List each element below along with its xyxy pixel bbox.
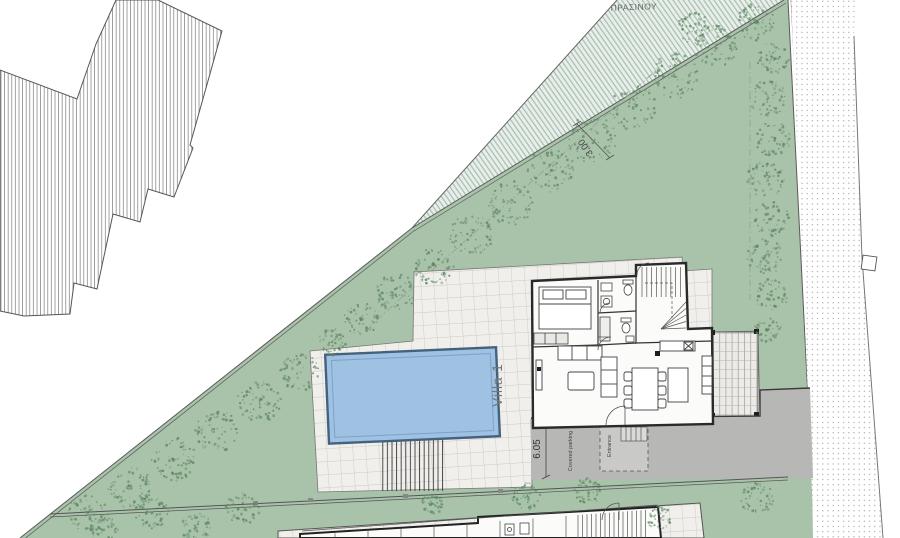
bed (539, 287, 591, 329)
pool-side-grate (379, 434, 446, 491)
dim-6-05: 6.05 (532, 439, 543, 459)
label-entrance: Entrance (607, 435, 613, 457)
site-plan-svg: 6.05 Covered parking Entrance (0, 0, 900, 538)
label-covered-parking: Covered parking (568, 431, 574, 471)
dining-table (624, 368, 666, 410)
wardrobe (534, 333, 568, 344)
pool (325, 347, 500, 443)
utility-box (861, 255, 877, 271)
pergola (710, 329, 759, 418)
label-villa-1: Villa 1 (490, 363, 505, 407)
entrance-steps (621, 427, 647, 441)
site-plan: 6.05 Covered parking Entrance (0, 0, 900, 538)
label-prasinou: ΠΡΑΣΙΝΟΥ (610, 1, 657, 13)
villa1-house (532, 263, 713, 428)
neighbor-building (0, 0, 222, 316)
